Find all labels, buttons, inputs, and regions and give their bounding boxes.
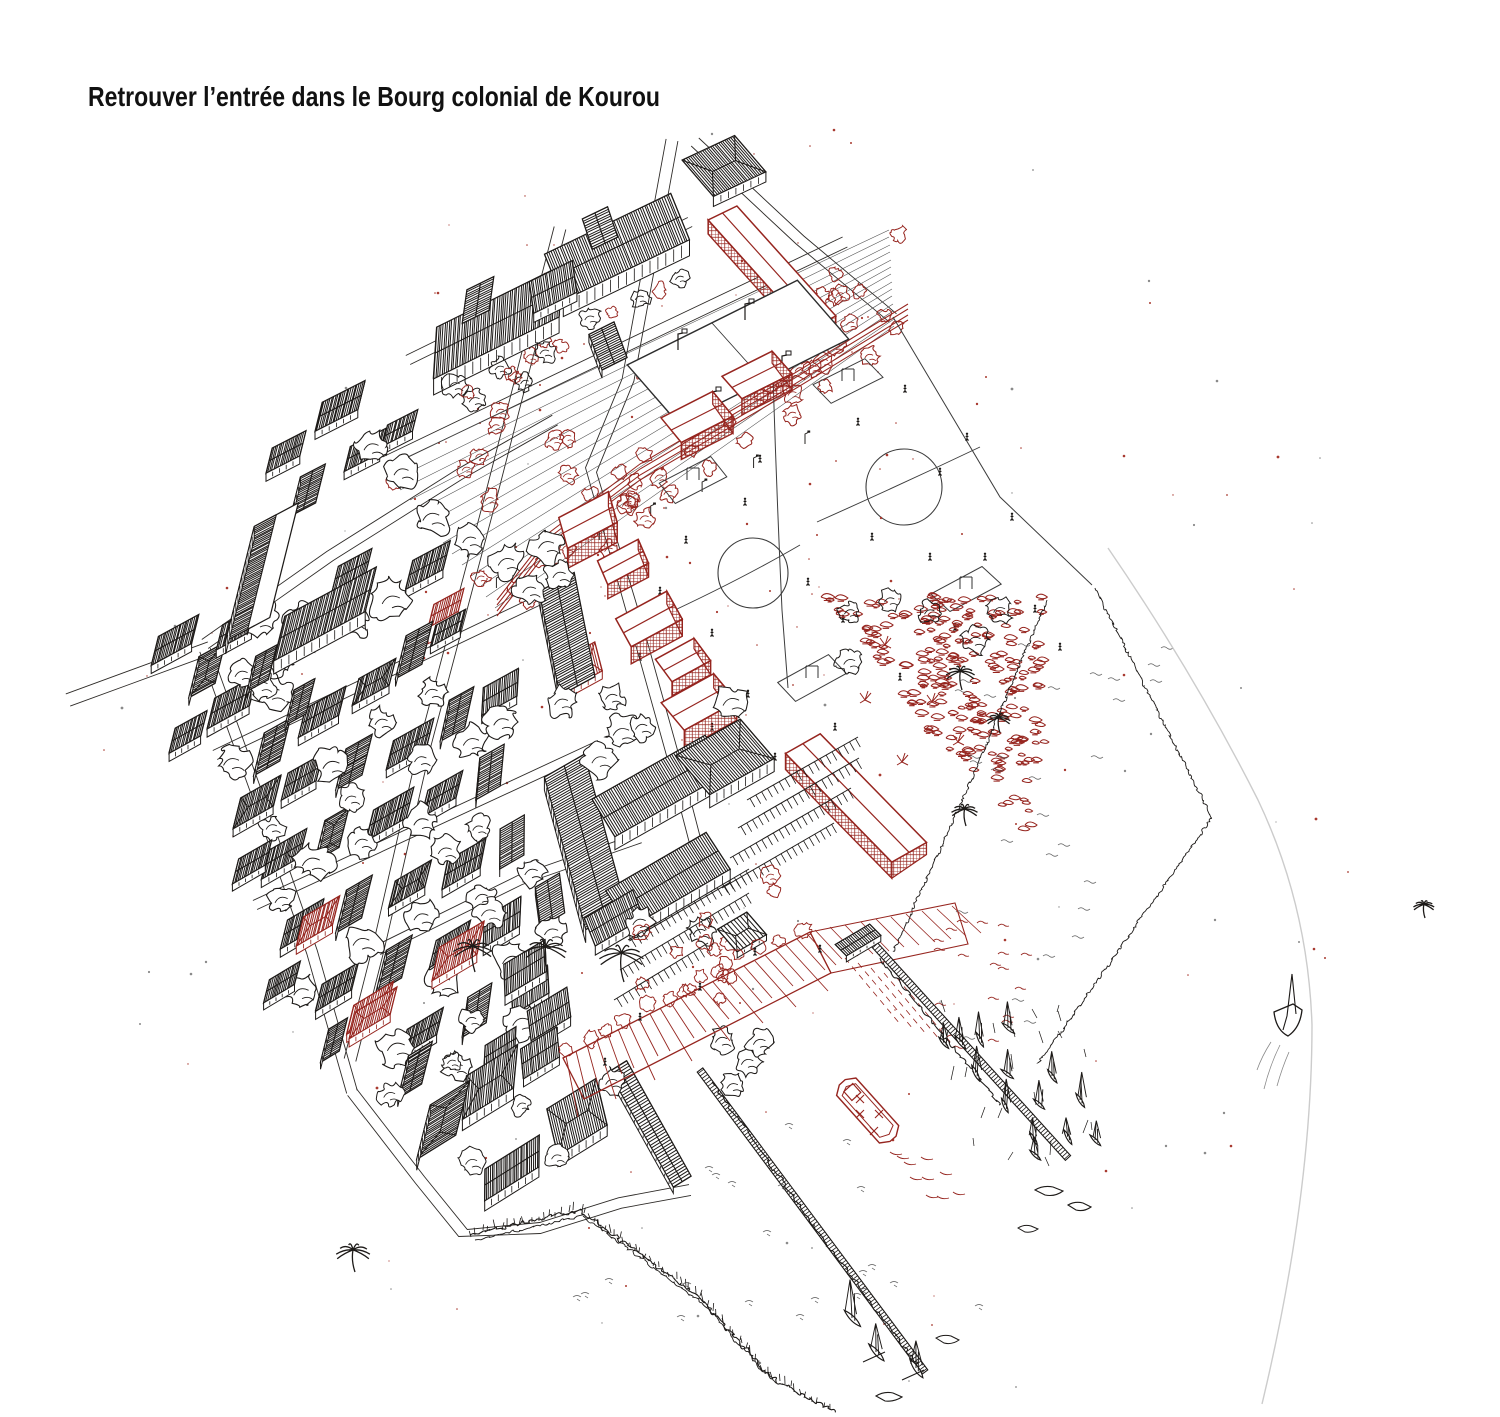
svg-text:Retrouver l’entrée dans le Bou: Retrouver l’entrée dans le Bourg colonia… <box>88 81 660 112</box>
